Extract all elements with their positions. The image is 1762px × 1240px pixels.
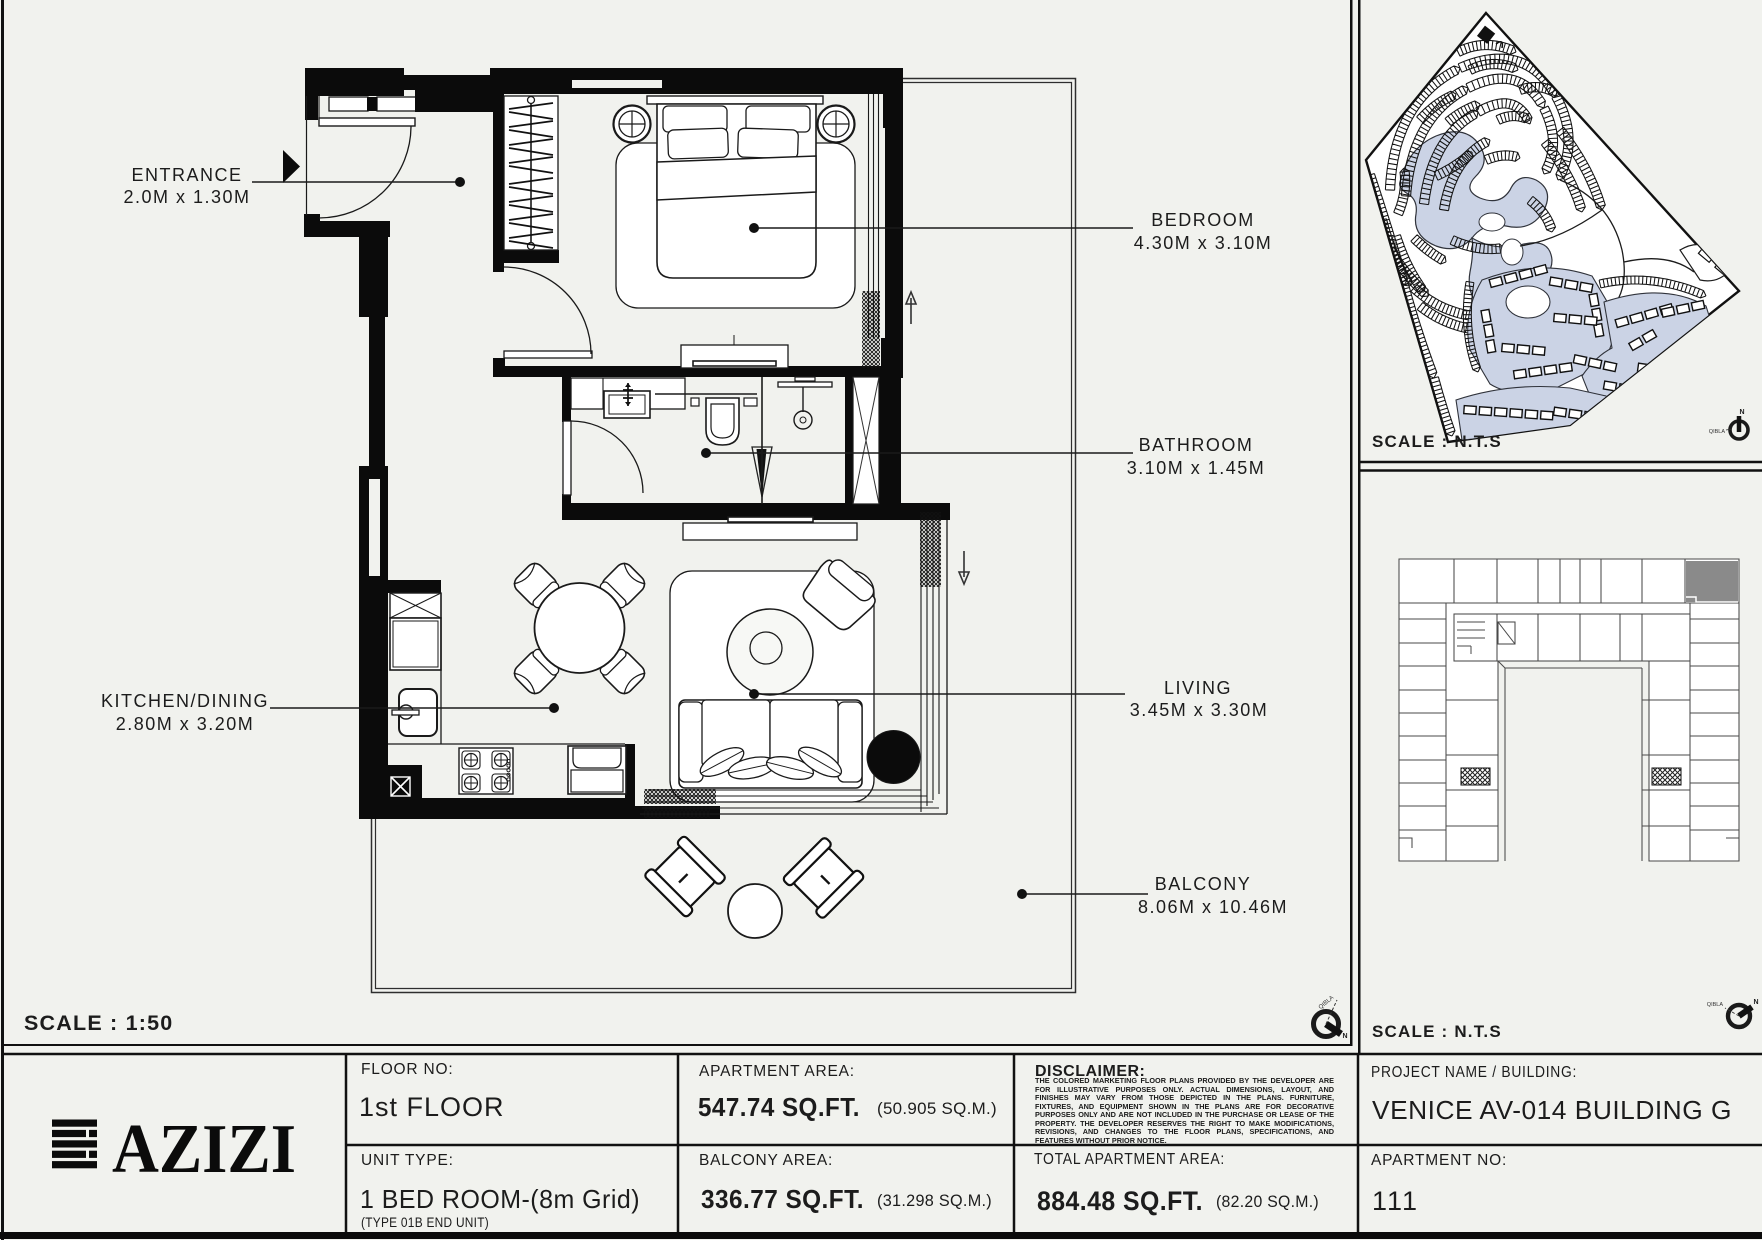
svg-text:(50.905 SQ.M.): (50.905 SQ.M.) bbox=[877, 1100, 997, 1118]
svg-text:4.30M x 3.10M: 4.30M x 3.10M bbox=[1134, 233, 1273, 253]
svg-text:N: N bbox=[1739, 409, 1744, 416]
svg-text:(31.298 SQ.M.): (31.298 SQ.M.) bbox=[877, 1192, 992, 1210]
svg-text:N: N bbox=[1753, 999, 1758, 1006]
svg-text:AZIZI: AZIZI bbox=[112, 1111, 296, 1188]
svg-text:SCALE : N.T.S: SCALE : N.T.S bbox=[1372, 1022, 1502, 1041]
svg-text:ENTRANCE: ENTRANCE bbox=[131, 165, 242, 185]
svg-text:N: N bbox=[1342, 1033, 1347, 1040]
svg-text:3.10M x 1.45M: 3.10M x 1.45M bbox=[1127, 458, 1266, 478]
svg-text:QIBLA: QIBLA bbox=[1707, 1002, 1724, 1008]
svg-text:(82.20 SQ.M.): (82.20 SQ.M.) bbox=[1216, 1193, 1319, 1211]
svg-text:KITCHEN/DINING: KITCHEN/DINING bbox=[101, 691, 269, 711]
svg-text:1st FLOOR: 1st FLOOR bbox=[359, 1092, 505, 1122]
svg-text:336.77 SQ.FT.: 336.77 SQ.FT. bbox=[701, 1184, 864, 1214]
svg-text:UNIT TYPE:: UNIT TYPE: bbox=[361, 1152, 454, 1169]
svg-text:FLOOR NO:: FLOOR NO: bbox=[361, 1061, 453, 1078]
svg-text:547.74 SQ.FT.: 547.74 SQ.FT. bbox=[698, 1092, 860, 1122]
svg-text:LIVING: LIVING bbox=[1164, 678, 1232, 698]
svg-text:VENICE AV-014 BUILDING G: VENICE AV-014 BUILDING G bbox=[1372, 1095, 1732, 1125]
svg-text:2.80M x 3.20M: 2.80M x 3.20M bbox=[116, 714, 255, 734]
svg-text:SCALE : 1:50: SCALE : 1:50 bbox=[24, 1011, 173, 1035]
svg-text:3.45M x 3.30M: 3.45M x 3.30M bbox=[1130, 700, 1269, 720]
svg-text:8.06M x 10.46M: 8.06M x 10.46M bbox=[1138, 897, 1288, 917]
svg-text:111: 111 bbox=[1372, 1186, 1419, 1216]
svg-text:1 BED ROOM-(8m Grid): 1 BED ROOM-(8m Grid) bbox=[360, 1184, 640, 1214]
svg-text:BEDROOM: BEDROOM bbox=[1151, 210, 1255, 230]
svg-text:(TYPE 01B END UNIT): (TYPE 01B END UNIT) bbox=[361, 1215, 489, 1230]
svg-text:SCALE : N.T.S: SCALE : N.T.S bbox=[1372, 432, 1502, 451]
svg-text:BALCONY: BALCONY bbox=[1155, 874, 1252, 894]
svg-text:884.48 SQ.FT.: 884.48 SQ.FT. bbox=[1037, 1186, 1203, 1216]
svg-text:APARTMENT NO:: APARTMENT NO: bbox=[1371, 1152, 1507, 1169]
svg-text:BALCONY AREA:: BALCONY AREA: bbox=[699, 1152, 833, 1169]
svg-text:APARTMENT AREA:: APARTMENT AREA: bbox=[699, 1063, 855, 1080]
svg-text:QIBLA: QIBLA bbox=[1709, 429, 1726, 435]
svg-text:2.0M x 1.30M: 2.0M x 1.30M bbox=[123, 187, 250, 207]
svg-text:PROJECT NAME / BUILDING:: PROJECT NAME / BUILDING: bbox=[1371, 1064, 1577, 1081]
svg-text:BATHROOM: BATHROOM bbox=[1139, 435, 1254, 455]
svg-text:TOTAL APARTMENT AREA:: TOTAL APARTMENT AREA: bbox=[1034, 1151, 1225, 1168]
